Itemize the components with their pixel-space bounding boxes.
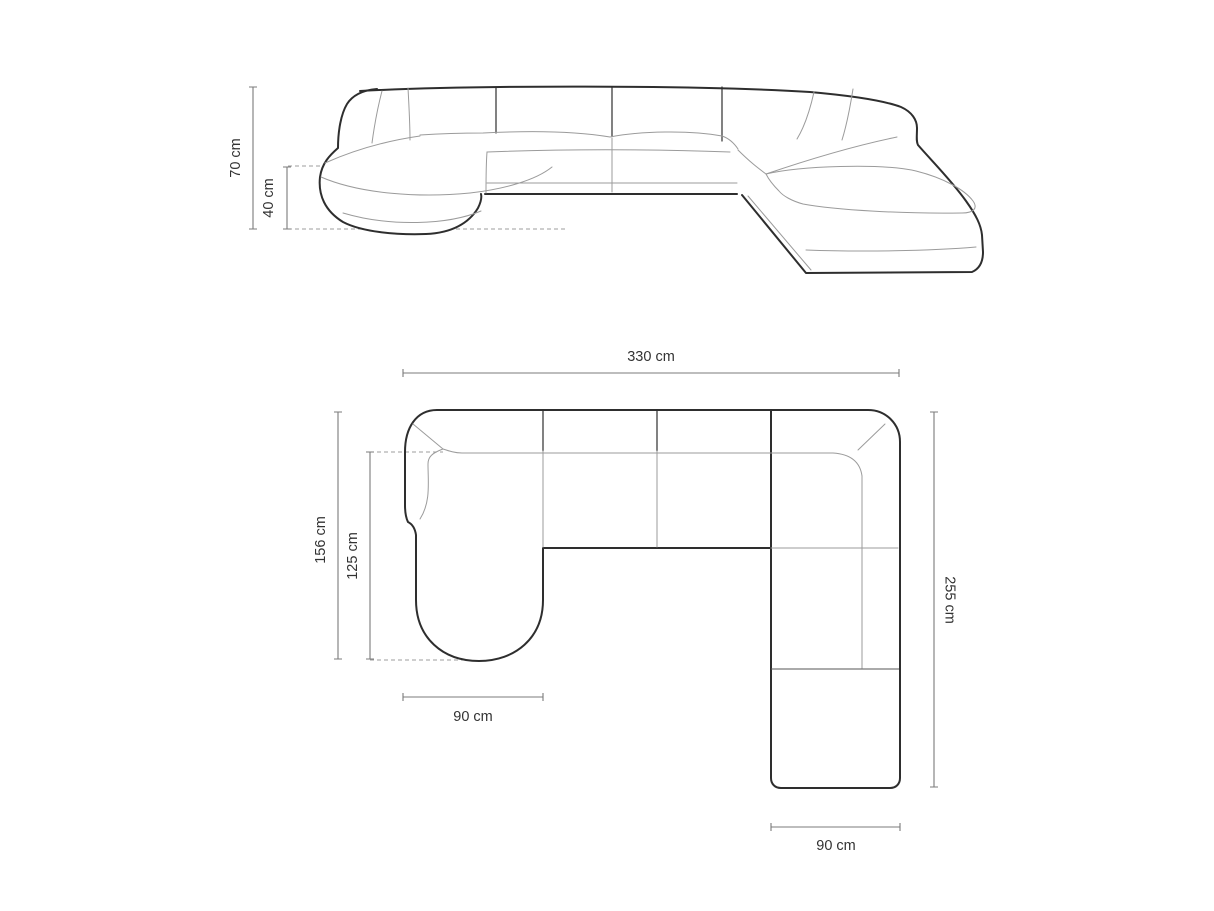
plan-view-drawing <box>334 369 938 831</box>
sofa-plan-outline <box>405 410 900 788</box>
dim-label-chaise-width: 90 cm <box>453 710 493 725</box>
dim-label-total-depth: 255 cm <box>942 576 957 624</box>
dimension-chaise-inner-depth <box>366 452 374 659</box>
sofa-technical-drawing <box>0 0 1214 911</box>
dimension-ottoman-width <box>771 823 900 831</box>
dim-label-chaise-inner-depth: 125 cm <box>346 532 361 580</box>
dim-label-seat-height: 40 cm <box>262 178 277 218</box>
drawing-canvas: 70 cm 40 cm 330 cm 156 cm 125 cm 255 cm … <box>0 0 1214 911</box>
front-view-drawing <box>249 87 983 273</box>
backrest-inner-seam <box>443 449 862 476</box>
dimension-seat-height <box>283 167 291 229</box>
dimension-total-height <box>249 87 257 229</box>
dimension-total-width <box>403 369 899 377</box>
dimension-total-depth <box>930 412 938 787</box>
dim-label-total-width: 330 cm <box>627 350 675 365</box>
backrest-dividers <box>496 87 722 141</box>
dimension-chaise-width <box>403 693 543 701</box>
dim-label-total-height: 70 cm <box>229 138 244 178</box>
dimension-chaise-total-depth <box>334 412 342 659</box>
dim-label-ottoman-width: 90 cm <box>816 839 856 854</box>
dim-label-chaise-total-depth: 156 cm <box>314 516 329 564</box>
